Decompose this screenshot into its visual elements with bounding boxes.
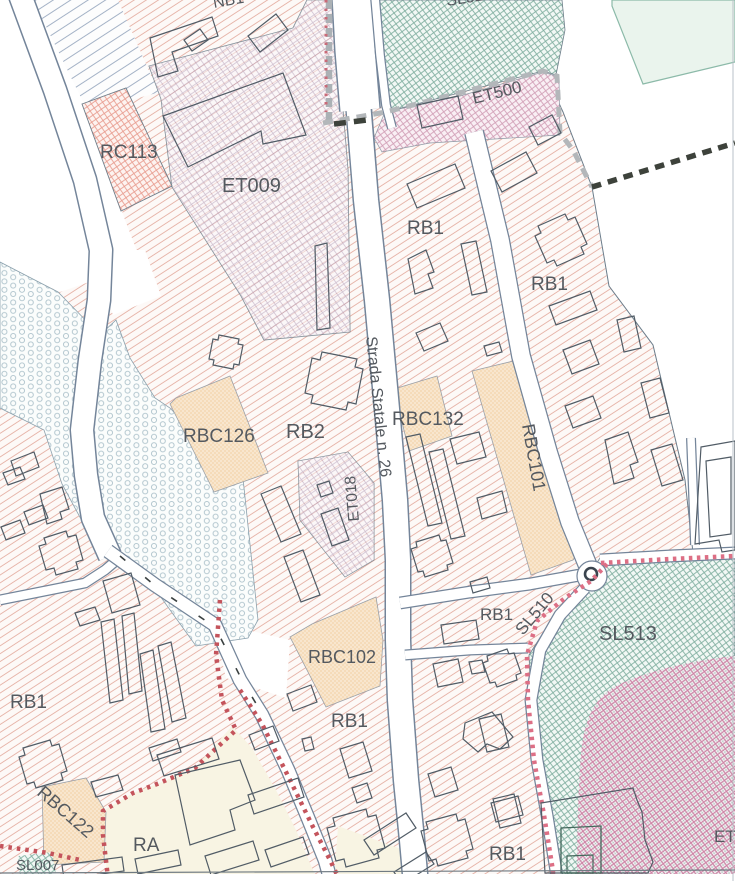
svg-text:RB2: RB2 [286,421,325,443]
svg-text:RBC132: RBC132 [392,409,464,430]
svg-text:SL513: SL513 [599,623,657,645]
svg-text:RB1: RB1 [407,218,444,239]
svg-text:RB1: RB1 [531,274,568,295]
svg-text:RB1: RB1 [480,605,513,624]
svg-text:RA: RA [133,835,160,856]
svg-text:ET009: ET009 [222,175,281,197]
svg-text:RB1: RB1 [10,692,47,713]
svg-text:RC113: RC113 [100,142,158,163]
svg-text:RB1: RB1 [489,844,526,865]
svg-text:RBC102: RBC102 [308,647,376,667]
svg-text:RB1: RB1 [331,711,368,732]
svg-text:SL007: SL007 [16,857,59,874]
svg-text:ET: ET [714,827,735,846]
svg-text:RBC126: RBC126 [183,426,255,447]
